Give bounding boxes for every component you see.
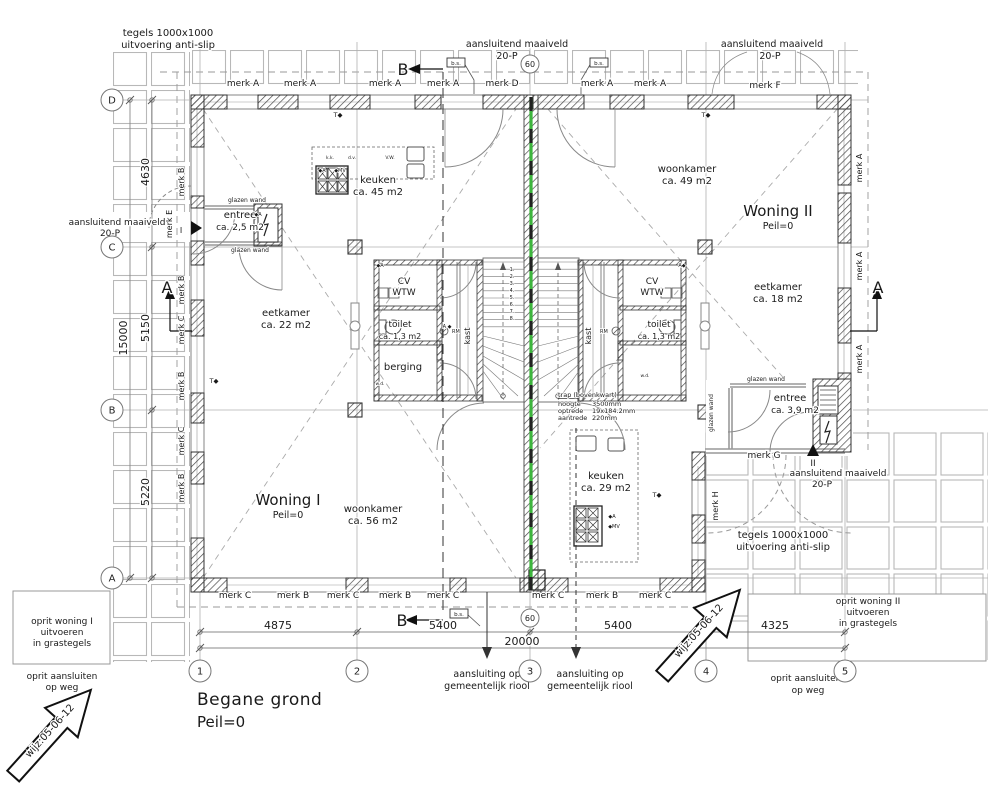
label-merk-c: merk C xyxy=(219,591,251,601)
label-i: I xyxy=(180,226,182,235)
label-peil-0: Peil=0 xyxy=(763,221,794,232)
label-ca-3-9-m2: ca. 3,9 m2 xyxy=(771,406,819,416)
label-mv: ◆MV xyxy=(334,168,346,174)
dimension-5400: 5400 xyxy=(604,619,632,632)
bs-tag: b.s. xyxy=(451,61,461,67)
label-merk-b: merk B xyxy=(177,168,186,197)
label-merk-b: merk B xyxy=(586,591,618,601)
label-merk-a: merk A xyxy=(284,79,317,89)
label-d-v: d.v. xyxy=(348,155,356,161)
label-glazen-wand: glazen wand xyxy=(708,394,715,432)
label-k-k: k.k. xyxy=(326,155,334,161)
grid-bubble-4: 4 xyxy=(703,667,709,678)
label-woning-i: Woning I xyxy=(255,491,320,509)
label-1: 1. xyxy=(510,267,515,273)
grid-bubble-1: 1 xyxy=(197,667,203,678)
label-entree: entree xyxy=(774,393,807,404)
label-3: 3. xyxy=(510,281,515,287)
label-merk-f: merk F xyxy=(749,81,780,91)
label-merk-e: merk E xyxy=(165,210,174,238)
label-woonkamer: woonkamer xyxy=(658,164,717,175)
label-merk-a: merk A xyxy=(634,79,667,89)
label-a: ◆A xyxy=(318,168,326,174)
bs-tag: b.s. xyxy=(594,61,604,67)
label-20-p: 20-P xyxy=(759,51,781,62)
label-ca-49-m2: ca. 49 m2 xyxy=(662,176,712,187)
label-op-weg: op weg xyxy=(46,683,79,693)
grid-bubble-5: 5 xyxy=(842,667,848,678)
label-aansluitend-maaiveld: aansluitend maaiveld xyxy=(790,469,887,479)
dimension-4325: 4325 xyxy=(761,619,789,632)
label-eetkamer: eetkamer xyxy=(754,282,803,293)
label-gemeentelijk-riool: gemeentelijk riool xyxy=(444,681,530,692)
label-merk-b: merk B xyxy=(177,276,186,305)
grid-bubble-D: D xyxy=(108,96,116,107)
label-a: A◆ xyxy=(678,263,685,269)
label-ca-18-m2: ca. 18 m2 xyxy=(753,294,803,305)
label-w-d: w.d. xyxy=(376,381,385,387)
label-merk-d: merk D xyxy=(485,79,518,89)
label-trap-bovenkwart: trap (bovenkwart) xyxy=(558,391,617,399)
label-toilet: toilet xyxy=(647,320,671,330)
party-wall xyxy=(524,95,538,592)
label-7: 7. xyxy=(510,309,515,315)
label-merk-a: merk A xyxy=(369,79,402,89)
label-a: ◆A xyxy=(608,514,616,520)
floorplan-drawing: tegels 1000x1000uitvoering anti-slipaans… xyxy=(0,0,1000,801)
label-merk-b: merk B xyxy=(177,372,186,401)
page-title: Begane grond xyxy=(197,690,322,710)
label-a: ◆A xyxy=(376,263,384,269)
label-keuken: keuken xyxy=(588,471,624,482)
grid-bubble-2: 2 xyxy=(354,667,360,678)
label-merk-g: merk G xyxy=(747,451,780,461)
label-aansluitend-maaiveld: aansluitend maaiveld xyxy=(466,39,568,50)
label-oprit-aansluiten: oprit aansluiten xyxy=(771,674,842,684)
label-aansluitend-maaiveld: aansluitend maaiveld xyxy=(721,39,823,50)
label-gemeentelijk-riool: gemeentelijk riool xyxy=(547,681,633,692)
label-ca-2-5-m2: ca. 2,5 m2 xyxy=(216,223,264,233)
label-20-p: 20-P xyxy=(496,51,518,62)
grid-bubble-A: A xyxy=(109,574,116,585)
label-merk-b: merk B xyxy=(379,591,411,601)
label-ca-29-m2: ca. 29 m2 xyxy=(581,483,631,494)
label-20-p: 20-P xyxy=(812,480,833,490)
label-t: T◆ xyxy=(701,111,711,119)
label-kast: kast xyxy=(584,328,593,345)
label-mv: ◆MV xyxy=(608,524,620,530)
label-keuken: keuken xyxy=(360,175,396,186)
label-b: B xyxy=(397,611,408,630)
kitchen-fixtures xyxy=(312,147,710,562)
label-ca-1-3-m2: ca. 1,3 m2 xyxy=(638,332,681,341)
label-glazen-wand: glazen wand xyxy=(747,376,785,383)
label-merk-c: merk C xyxy=(327,591,359,601)
label-oprit-woning-ii: oprit woning II xyxy=(836,597,900,607)
grid-bubble-B: B xyxy=(109,406,116,417)
label-5: 5. xyxy=(510,295,515,301)
label-uitvoering-anti-slip: uitvoering anti-slip xyxy=(121,40,215,51)
dimension-5220: 5220 xyxy=(139,478,152,506)
label-aansluiting-op: aansluiting op xyxy=(556,669,623,680)
label-op-weg: op weg xyxy=(792,686,825,696)
label-a: A ◆ xyxy=(443,324,452,330)
label-ca-45-m2: ca. 45 m2 xyxy=(353,187,403,198)
label-in-grastegels: in grastegels xyxy=(33,639,91,649)
label-merk-h: merk H xyxy=(711,491,720,520)
title-block: Begane grond Peil=0 xyxy=(197,690,322,731)
label-merk-c: merk C xyxy=(427,591,459,601)
label-a: ◆A xyxy=(254,212,262,218)
label-oprit-aansluiten: oprit aansluiten xyxy=(27,672,98,682)
label-merk-a: merk A xyxy=(427,79,460,89)
label-merk-c: merk C xyxy=(177,426,186,455)
label-merk-a: merk A xyxy=(855,153,864,182)
label-merk-a: merk A xyxy=(855,344,864,373)
label-t: T◆ xyxy=(333,111,343,119)
label-merk-c: merk C xyxy=(177,315,186,344)
label-w-d: w.d. xyxy=(641,373,650,379)
grid-bubble-C: C xyxy=(109,243,116,254)
dimension-5400: 5400 xyxy=(429,619,457,632)
label-kast: kast xyxy=(463,328,472,345)
label-merk-a: merk A xyxy=(581,79,614,89)
label-rm: RM xyxy=(600,329,608,335)
floorplan-canvas: tegels 1000x1000uitvoering anti-slipaans… xyxy=(0,0,1000,801)
label-a: A xyxy=(162,278,173,297)
label-eetkamer: eetkamer xyxy=(262,308,311,319)
label-tegels-1000x1000: tegels 1000x1000 xyxy=(123,28,214,39)
label-a: A xyxy=(873,278,884,297)
label-uitvoering-anti-slip: uitvoering anti-slip xyxy=(736,542,830,553)
label-ca-1-3-m2: ca. 1,3 m2 xyxy=(379,332,422,341)
label-6: 6. xyxy=(510,302,515,308)
label-b: B xyxy=(398,60,409,79)
grid-bubble-60: 60 xyxy=(525,614,535,623)
label-aansluitend-maaiveld: aansluitend maaiveld xyxy=(69,218,166,228)
label-4: 4. xyxy=(510,288,515,294)
label-berging: berging xyxy=(384,362,422,373)
dimension-4875: 4875 xyxy=(264,619,292,632)
label-8: 8. xyxy=(510,316,515,322)
label-glazen-wand: glazen wand xyxy=(231,247,269,254)
label-t: T◆ xyxy=(652,491,662,499)
label-cv: CV xyxy=(646,277,659,287)
grid-bubble-60: 60 xyxy=(525,60,535,69)
label-2: 2. xyxy=(510,274,515,280)
label-glazen-wand: glazen wand xyxy=(228,197,266,204)
label-entree: entree xyxy=(224,210,257,221)
label-uitvoeren: uitvoeren xyxy=(847,608,890,618)
label-aantrede: aantrede xyxy=(558,414,587,422)
label-ii: II xyxy=(810,459,815,469)
dimension-15000: 15000 xyxy=(117,321,130,356)
label-wtw: WTW xyxy=(392,288,415,298)
label-in-grastegels: in grastegels xyxy=(839,619,897,629)
dimension-4630: 4630 xyxy=(139,158,152,186)
label-ca-22-m2: ca. 22 m2 xyxy=(261,320,311,331)
label-rm: RM xyxy=(452,329,460,335)
label-merk-b: merk B xyxy=(177,474,186,503)
label-woonkamer: woonkamer xyxy=(344,504,403,515)
label-merk-a: merk A xyxy=(855,251,864,280)
label-oprit-woning-i: oprit woning I xyxy=(31,617,93,627)
label-merk-a: merk A xyxy=(227,79,260,89)
label-toilet: toilet xyxy=(388,320,412,330)
label-merk-b: merk B xyxy=(277,591,309,601)
page-subtitle: Peil=0 xyxy=(197,713,322,731)
label-merk-c: merk C xyxy=(639,591,671,601)
label-t: T◆ xyxy=(209,377,219,385)
label-aansluiting-op: aansluiting op xyxy=(453,669,520,680)
label-220mm: 220mm xyxy=(592,414,617,422)
label-woning-ii: Woning II xyxy=(743,202,812,220)
label-tegels-1000x1000: tegels 1000x1000 xyxy=(738,530,829,541)
label-ca-56-m2: ca. 56 m2 xyxy=(348,516,398,527)
grid-bubble-3: 3 xyxy=(527,667,533,678)
dimension-20000: 20000 xyxy=(505,635,540,648)
dimension-5150: 5150 xyxy=(139,314,152,342)
label-merk-c: merk C xyxy=(532,591,564,601)
label-v-w: V.W. xyxy=(385,155,394,161)
label-peil-0: Peil=0 xyxy=(273,510,304,521)
label-cv: CV xyxy=(398,277,411,287)
bs-tag: b.s. xyxy=(454,612,464,618)
label-uitvoeren: uitvoeren xyxy=(41,628,84,638)
label-wtw: WTW xyxy=(640,288,663,298)
